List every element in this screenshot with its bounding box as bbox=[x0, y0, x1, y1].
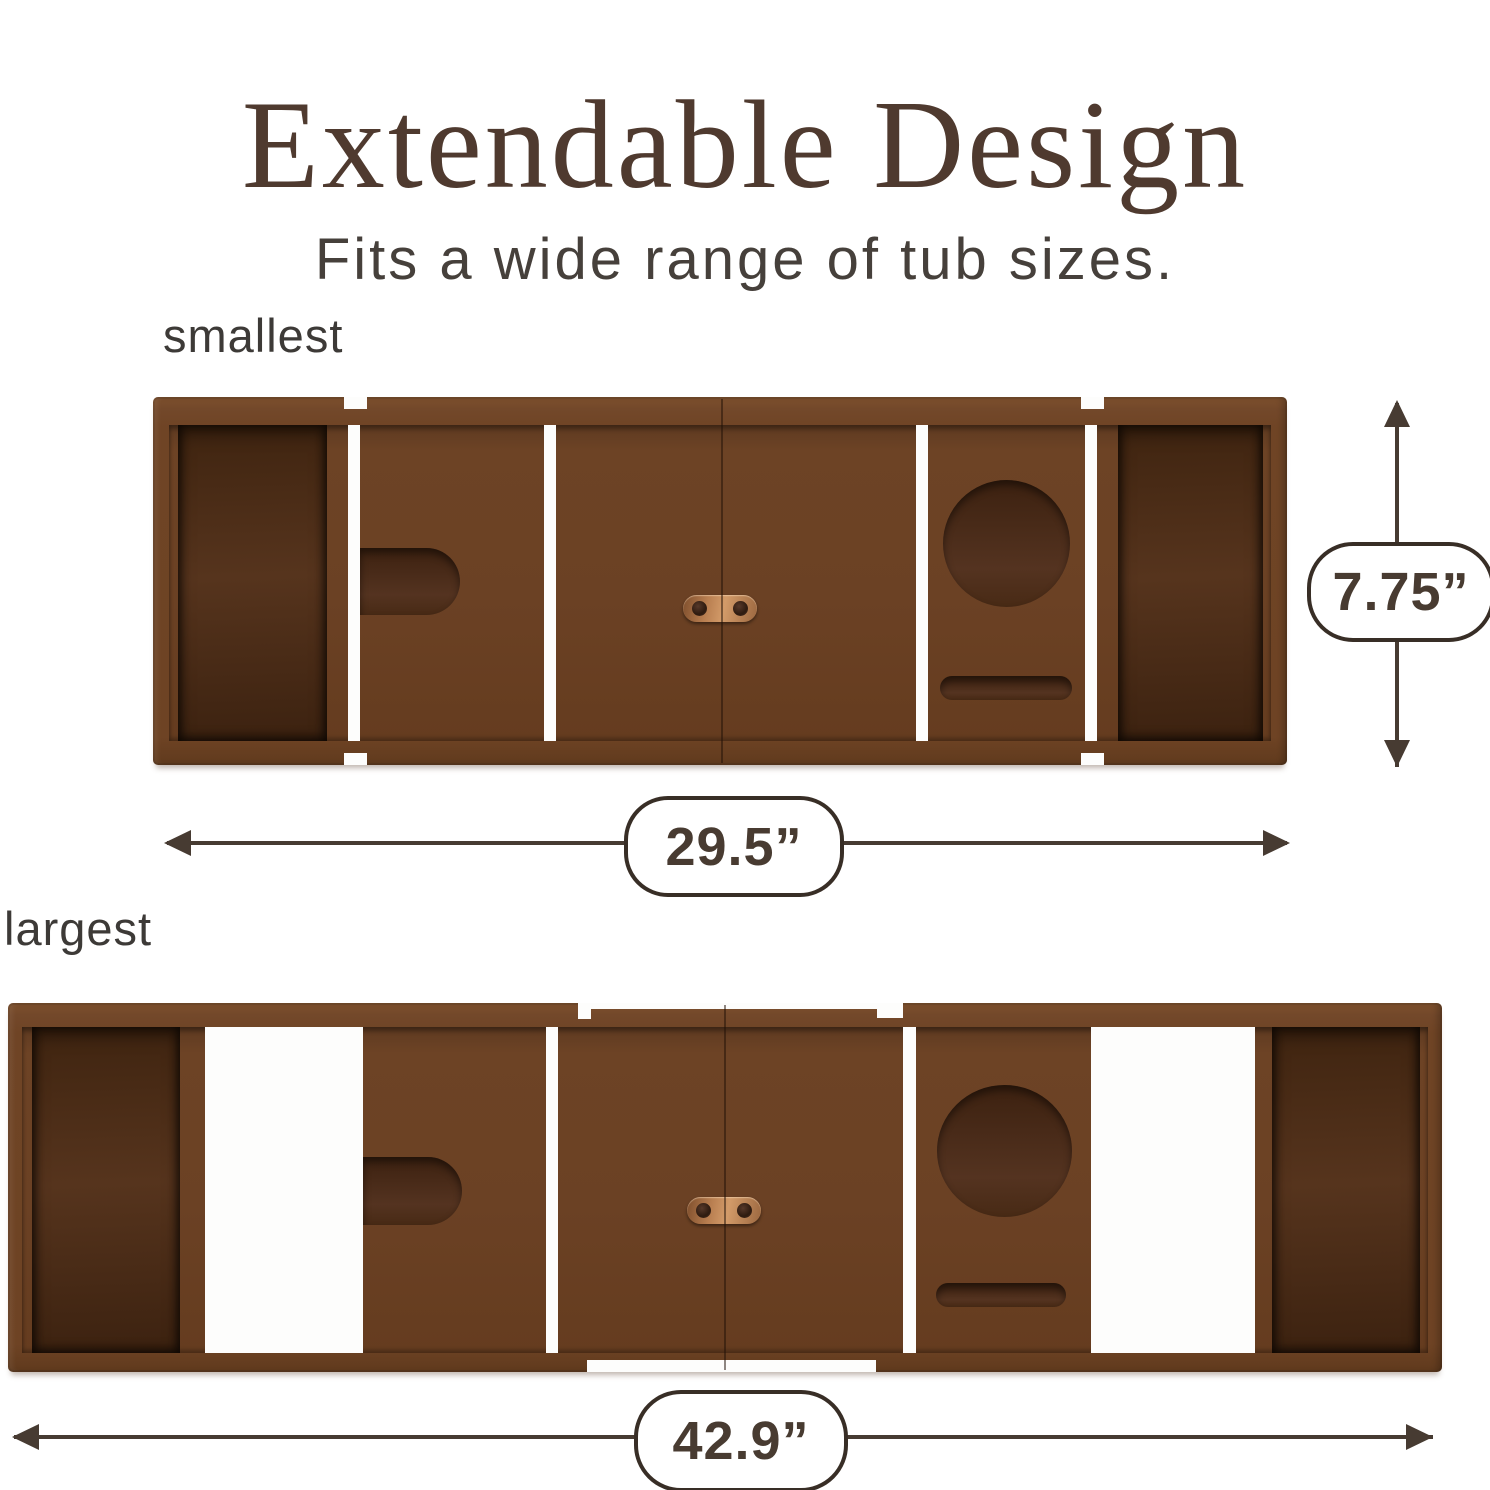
slide-gap-center-right bbox=[916, 425, 928, 741]
rail-notch bbox=[877, 1003, 903, 1018]
large-width-dimension-value: 42.9” bbox=[672, 1410, 809, 1472]
wine-glass-holder bbox=[943, 480, 1070, 607]
small-width-dimension-value: 29.5” bbox=[665, 816, 802, 878]
book-stand-notch bbox=[360, 548, 460, 615]
rail-step bbox=[578, 1003, 903, 1009]
bathtub-caddy-small bbox=[153, 397, 1287, 765]
storage-compartment-right bbox=[1118, 425, 1263, 741]
book-stand-notch bbox=[363, 1157, 462, 1225]
rail-notch bbox=[587, 1360, 876, 1372]
slide-gap-left bbox=[348, 425, 360, 741]
smallest-label: smallest bbox=[163, 308, 343, 363]
hinge-screw-icon bbox=[692, 601, 707, 616]
arrow-left-icon bbox=[12, 1424, 39, 1450]
center-seam bbox=[721, 399, 723, 763]
small-width-dimension-badge: 29.5” bbox=[624, 796, 844, 897]
rail-notch bbox=[1081, 397, 1104, 409]
rail-notch bbox=[344, 397, 367, 409]
device-slot bbox=[940, 676, 1072, 700]
hinge-screw-icon bbox=[737, 1203, 752, 1218]
device-slot bbox=[936, 1283, 1066, 1307]
rail-notch bbox=[344, 753, 367, 765]
extension-gap-right bbox=[1091, 1027, 1255, 1353]
page-subtitle: Fits a wide range of tub sizes. bbox=[0, 226, 1490, 293]
largest-label: largest bbox=[4, 901, 152, 956]
product-infographic: Extendable Design Fits a wide range of t… bbox=[0, 0, 1490, 1490]
storage-compartment-left bbox=[178, 425, 327, 741]
hinge-screw-icon bbox=[733, 601, 748, 616]
storage-compartment-left bbox=[32, 1027, 180, 1353]
slide-gap-center-left bbox=[546, 1027, 558, 1353]
hinge-screw-icon bbox=[696, 1203, 711, 1218]
arrow-left-icon bbox=[164, 830, 191, 856]
arrow-right-icon bbox=[1406, 1424, 1433, 1450]
slide-gap-center-left bbox=[544, 425, 556, 741]
slide-gap-center-right bbox=[903, 1027, 916, 1353]
center-seam bbox=[724, 1005, 726, 1370]
extension-gap-left bbox=[205, 1027, 363, 1353]
arrow-right-icon bbox=[1263, 830, 1290, 856]
slide-gap-right bbox=[1085, 425, 1097, 741]
height-dimension-value: 7.75” bbox=[1332, 561, 1469, 623]
rail-notch bbox=[1081, 753, 1104, 765]
caddy-deck bbox=[169, 425, 1271, 741]
height-dimension-badge: 7.75” bbox=[1307, 542, 1490, 642]
copper-hinge bbox=[683, 595, 757, 622]
arrow-down-icon bbox=[1384, 740, 1410, 767]
large-width-dimension-badge: 42.9” bbox=[634, 1390, 848, 1490]
wine-glass-holder bbox=[937, 1085, 1072, 1217]
rail-notch bbox=[578, 1003, 591, 1019]
arrow-up-icon bbox=[1384, 400, 1410, 427]
bathtub-caddy-large bbox=[8, 1003, 1442, 1372]
storage-compartment-right bbox=[1272, 1027, 1420, 1353]
page-title: Extendable Design bbox=[0, 74, 1490, 219]
